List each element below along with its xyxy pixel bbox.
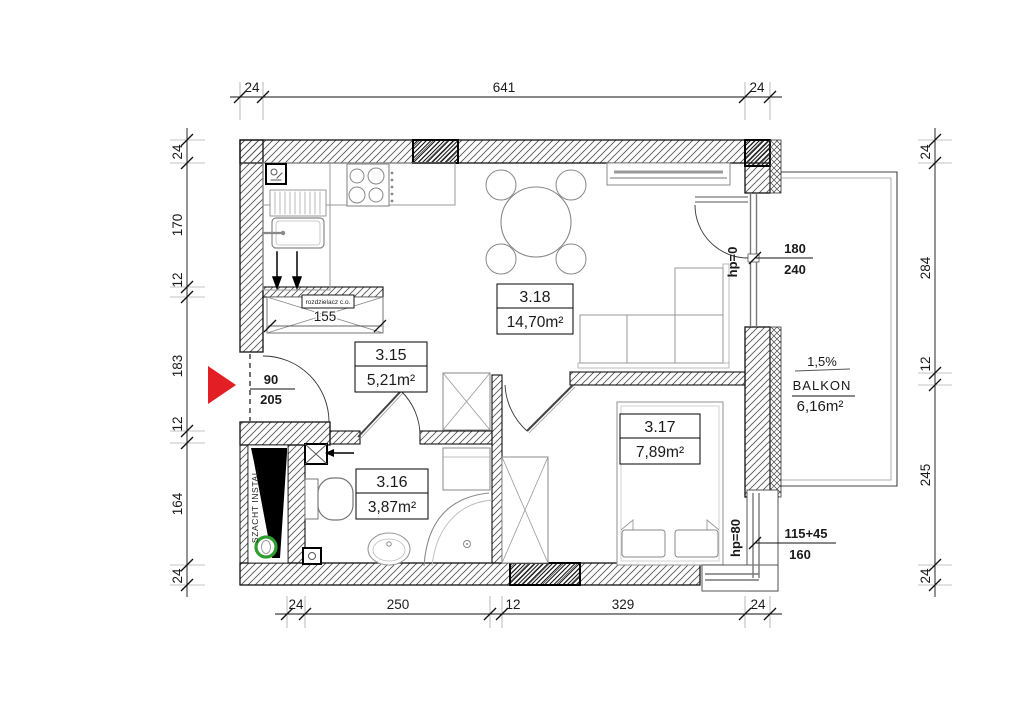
chair: [486, 170, 516, 200]
wall-bathroom-right: [420, 431, 492, 444]
dimension-chain-top: 24 641 24: [230, 80, 782, 120]
kitchen-sink: [263, 190, 326, 248]
balcony-slope-label: 1,5%: [807, 354, 837, 369]
installation-shaft: SZACHT INSTAL.: [248, 445, 288, 563]
toilet: [305, 478, 353, 520]
dim-label: 170: [170, 214, 185, 237]
window-sill-label: hp=80: [728, 519, 743, 557]
entrance-door: [208, 354, 329, 422]
room-area: 3,87m²: [368, 499, 416, 516]
wall-top: [240, 140, 770, 163]
floor-plan-canvas: SZACHT INSTAL.: [0, 0, 1024, 713]
balcony-door-spec: 180 240 hp=0: [725, 241, 813, 277]
pillow: [675, 530, 718, 557]
wall-entrance-stub: [240, 422, 330, 445]
door-sill-label: hp=0: [725, 247, 740, 278]
floor-plan-drawing: SZACHT INSTAL.: [0, 0, 1024, 713]
corner-bathtub: [424, 493, 492, 566]
door-height-label: 240: [784, 262, 806, 277]
wall-left-upper: [240, 140, 263, 352]
dim-label: 164: [170, 492, 185, 515]
wall-bedroom-vertical: [492, 375, 502, 563]
balcony-name-label: BALKON: [793, 378, 852, 393]
dim-label: 24: [170, 568, 185, 584]
door-width-label: 90: [264, 372, 278, 387]
dim-label: 24: [918, 568, 933, 584]
room-area: 14,70m²: [507, 314, 564, 331]
dim-label: 12: [505, 597, 520, 612]
dim-label: 329: [612, 597, 635, 612]
chair: [556, 170, 586, 200]
entrance-arrow-icon: [208, 366, 236, 404]
washing-machine: [443, 448, 490, 490]
wall-shaft: [288, 445, 305, 563]
balcony-slab: [781, 172, 897, 486]
dim-label: 12: [170, 272, 185, 287]
wall-top-column: [413, 140, 458, 163]
wall-right-mid: [745, 327, 770, 497]
wall-bottom-column: [510, 563, 580, 585]
bedroom-door: [505, 385, 575, 433]
bedroom-window-spec: 115+45 160 hp=80: [728, 519, 836, 562]
dim-label: 24: [750, 597, 766, 612]
room-number: 3.15: [375, 347, 406, 364]
dim-label: 12: [918, 356, 933, 371]
room-number: 3.17: [644, 419, 675, 436]
distributor-cabinet: 155 rozdzielacz c.o.: [264, 295, 386, 333]
dimension-chain-bottom: 24 250 12 329 24: [275, 596, 782, 628]
dim-label: 24: [288, 597, 304, 612]
kitchen: [263, 163, 455, 290]
hall-wardrobe: [443, 373, 490, 430]
dim-label: 183: [170, 355, 185, 378]
room-number: 3.18: [519, 289, 550, 306]
insulation-mid: [770, 327, 781, 497]
distributor-label: rozdzielacz c.o.: [306, 299, 351, 306]
room-number: 3.16: [376, 474, 407, 491]
shaft-label: SZACHT INSTAL.: [250, 467, 260, 543]
dining-table: [501, 187, 571, 257]
window-height-label: 160: [789, 547, 811, 562]
dimension-chain-right: 24 284 12 245 24: [918, 128, 952, 597]
dim-label: 284: [918, 256, 933, 279]
dim-label: 12: [170, 416, 185, 431]
dim-label: 24: [170, 144, 185, 160]
window-width-label: 115+45: [784, 526, 827, 541]
entrance-door-spec: 90 205: [250, 372, 295, 407]
dim-label: 641: [493, 80, 516, 95]
dining-set: [486, 170, 586, 274]
bedroom-wardrobe: [502, 457, 548, 563]
room-label-3-18: 3.18 14,70m²: [497, 284, 573, 334]
room-label-3-17: 3.17 7,89m²: [620, 414, 700, 464]
bathroom-door: [358, 391, 420, 439]
distributor-width-label: 155: [314, 309, 337, 324]
door-width-label: 180: [784, 241, 806, 256]
stove: [347, 164, 393, 206]
room-label-3-16: 3.16 3,87m²: [356, 469, 428, 519]
wall-bathroom-left: [330, 431, 360, 444]
vent-box-icon: [266, 164, 286, 184]
room-area: 7,89m²: [636, 444, 684, 461]
pillow: [622, 530, 665, 557]
supply-arrows-icon: [273, 252, 301, 288]
chair: [556, 244, 586, 274]
dimension-chain-left: 24 170 12 183 12 164 24: [170, 128, 205, 597]
balcony-labels: 1,5% BALKON 6,16m²: [792, 354, 855, 415]
dim-label: 24: [918, 144, 933, 160]
wall-left-lower: [240, 445, 248, 563]
dim-label: 250: [387, 597, 410, 612]
chair: [486, 244, 516, 274]
washbasin: [368, 533, 410, 565]
room-label-3-15: 3.15 5,21m²: [355, 342, 427, 392]
drain-box-icon: [303, 548, 321, 564]
dim-label: 24: [244, 80, 260, 95]
door-height-label: 205: [260, 392, 282, 407]
dim-label: 245: [918, 464, 933, 487]
wall-bottom: [240, 563, 700, 585]
insulation-top: [770, 140, 781, 193]
wall-bedroom-horizontal: [570, 372, 745, 385]
balcony-area-label: 6,16m²: [797, 398, 844, 415]
wall-right-column: [745, 140, 770, 166]
dim-label: 24: [749, 80, 765, 95]
tv-cabinet: [607, 163, 730, 185]
room-area: 5,21m²: [367, 372, 415, 389]
corner-sofa: [578, 264, 729, 368]
vent-box-icon: [305, 444, 354, 464]
